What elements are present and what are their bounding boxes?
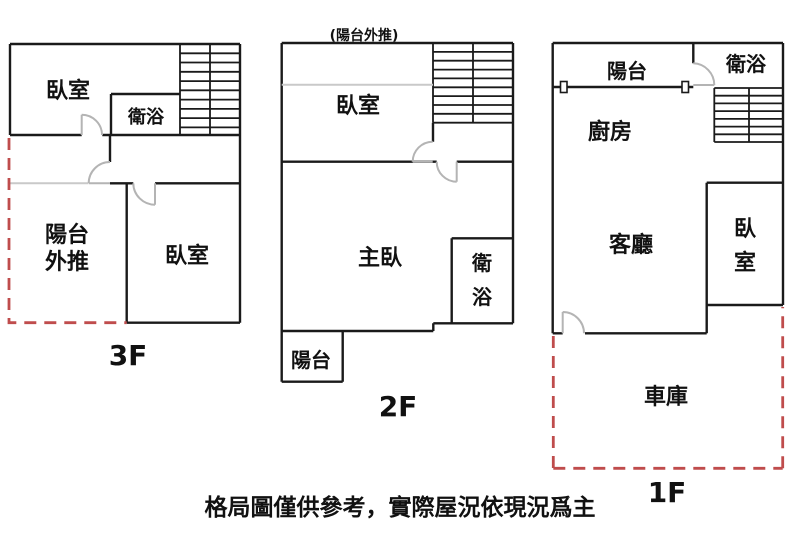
walls-2f — [282, 43, 513, 382]
room-label-bedroom-2f: 臥室 — [336, 93, 380, 119]
stairs-3f — [180, 44, 240, 135]
room-label-balcony-pushed-line2-3f: 外推 — [45, 249, 89, 275]
room-label-balcony-pushed-line1-3f: 陽台 — [45, 222, 89, 248]
floor-plan-drawing: 臥室 衛浴 陽台 外推 臥室 3F (陽台外推) 臥室 主臥 衛 浴 陽台 2F… — [0, 0, 800, 537]
room-label-bathroom-2f-char2: 浴 — [472, 285, 493, 309]
floor-plan-page: 臥室 衛浴 陽台 外推 臥室 3F (陽台外推) 臥室 主臥 衛 浴 陽台 2F… — [0, 0, 800, 537]
room-label-balcony-1f: 陽台 — [607, 59, 647, 83]
floor-plan-1f: 陽台 衛浴 廚房 客廳 臥 室 車庫 1F — [553, 43, 783, 509]
room-label-bathroom-1f: 衛浴 — [725, 52, 767, 76]
room-label-kitchen-1f: 廚房 — [588, 119, 632, 145]
note-balcony-pushed-2f: (陽台外推) — [330, 27, 399, 44]
floor-plan-3f: 臥室 衛浴 陽台 外推 臥室 3F — [9, 44, 240, 372]
walls-1f — [553, 43, 783, 333]
room-label-bathroom-2f-char1: 衛 — [471, 251, 492, 275]
room-label-garage-1f: 車庫 — [644, 384, 688, 410]
stairs-1f — [714, 88, 783, 142]
floor-label-3f: 3F — [109, 339, 148, 372]
room-label-living-room-1f: 客廳 — [609, 232, 653, 258]
stairs-2f — [433, 43, 513, 123]
room-label-bathroom-3f: 衛浴 — [127, 106, 165, 128]
room-label-master-bedroom-2f: 主臥 — [358, 246, 403, 271]
floor-label-2f: 2F — [379, 390, 418, 423]
room-label-bedroom-bottom-3f: 臥室 — [165, 243, 209, 269]
room-label-bedroom-top-3f: 臥室 — [46, 78, 90, 104]
door-arcs-3f — [82, 115, 155, 205]
room-label-bedroom-1f-char2: 室 — [734, 250, 756, 276]
floor-plan-2f: (陽台外推) 臥室 主臥 衛 浴 陽台 2F — [282, 27, 513, 423]
window-marker-right-1f — [682, 82, 689, 93]
room-label-balcony-2f: 陽台 — [291, 348, 331, 372]
room-label-bedroom-1f-char1: 臥 — [734, 217, 757, 242]
window-marker-left-1f — [561, 82, 568, 93]
door-arcs-1f — [563, 63, 715, 333]
disclaimer-caption: 格局圖僅供參考，實際屋況依現況爲主 — [205, 494, 596, 521]
floor-label-1f: 1F — [648, 476, 687, 509]
